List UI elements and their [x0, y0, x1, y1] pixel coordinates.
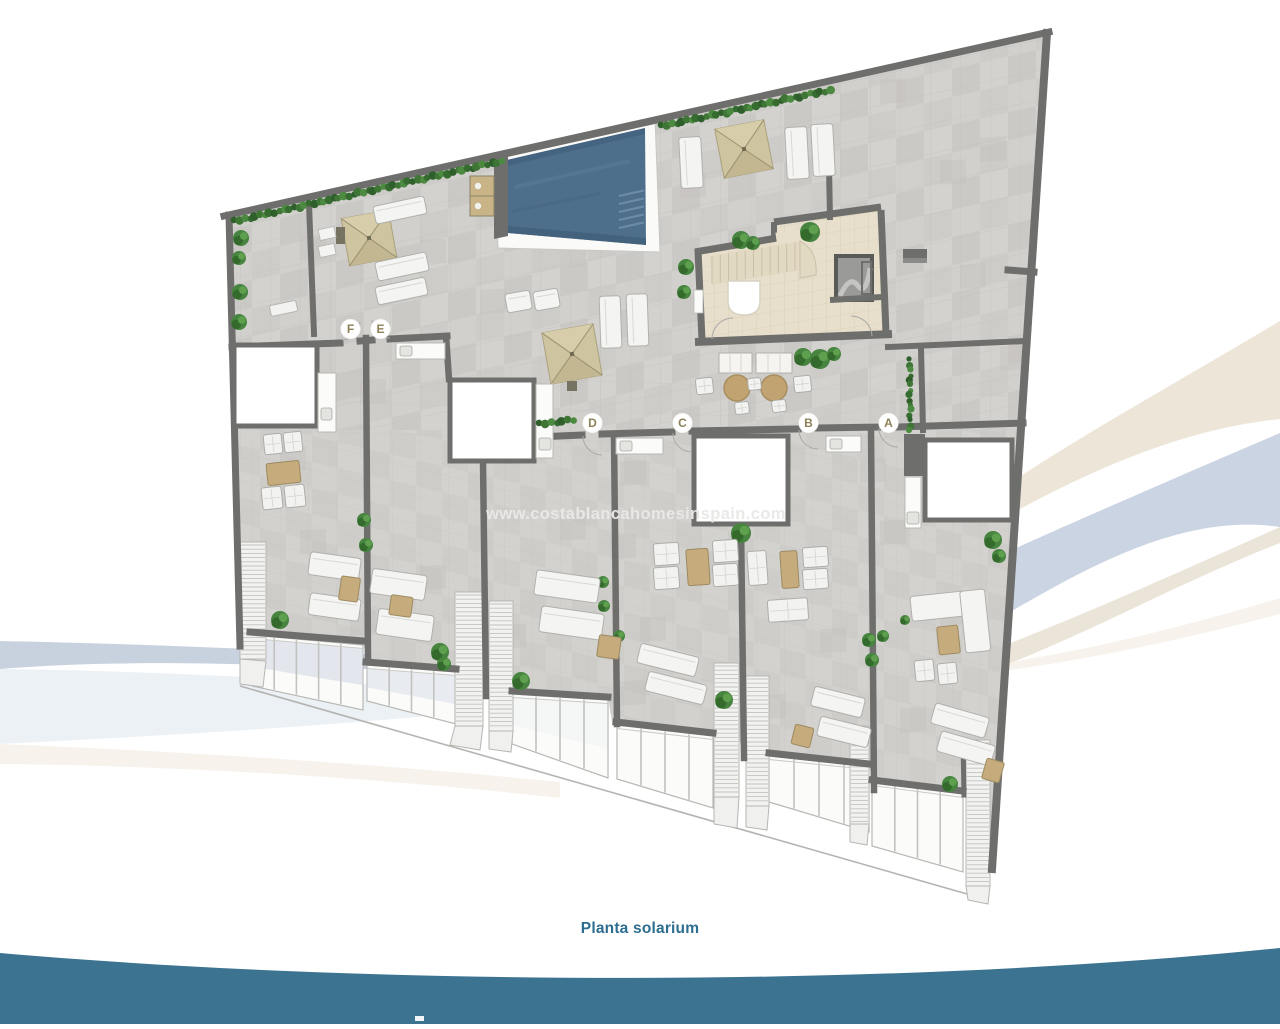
svg-text:www.costablancahomesinspain.co: www.costablancahomesinspain.com	[485, 505, 786, 523]
svg-text:D: D	[588, 416, 597, 430]
svg-text:B: B	[804, 416, 813, 430]
svg-text:Planta solarium: Planta solarium	[581, 920, 699, 937]
svg-text:C: C	[678, 416, 687, 430]
svg-text:A: A	[884, 416, 893, 430]
svg-text:E: E	[376, 322, 384, 336]
svg-text:F: F	[347, 322, 354, 336]
